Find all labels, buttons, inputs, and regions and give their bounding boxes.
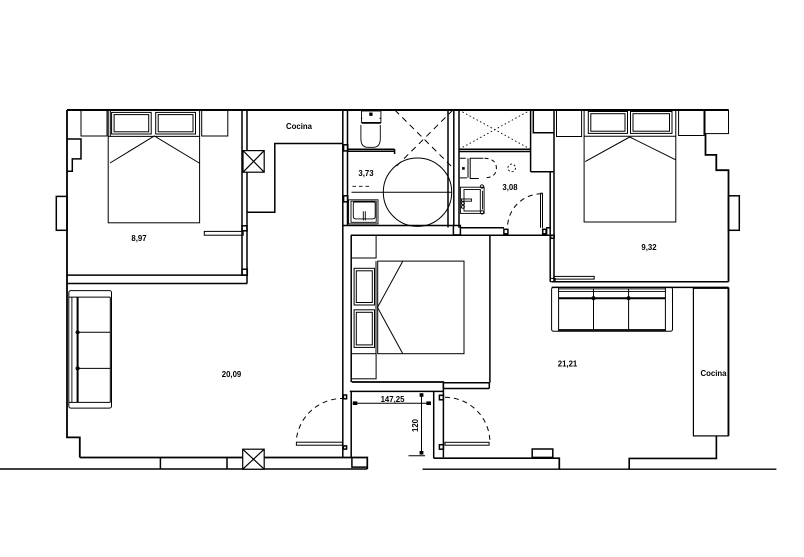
svg-text:21,21: 21,21	[558, 359, 578, 368]
svg-text:147,25: 147,25	[381, 395, 406, 404]
svg-text:Cocina: Cocina	[286, 122, 313, 131]
svg-text:9,32: 9,32	[641, 243, 657, 252]
svg-text:120: 120	[411, 418, 420, 432]
svg-text:20,09: 20,09	[222, 370, 242, 379]
svg-text:3,08: 3,08	[502, 183, 518, 192]
svg-text:3,73: 3,73	[358, 169, 374, 178]
svg-text:Cocina: Cocina	[701, 369, 728, 378]
svg-text:8,97: 8,97	[131, 234, 146, 243]
